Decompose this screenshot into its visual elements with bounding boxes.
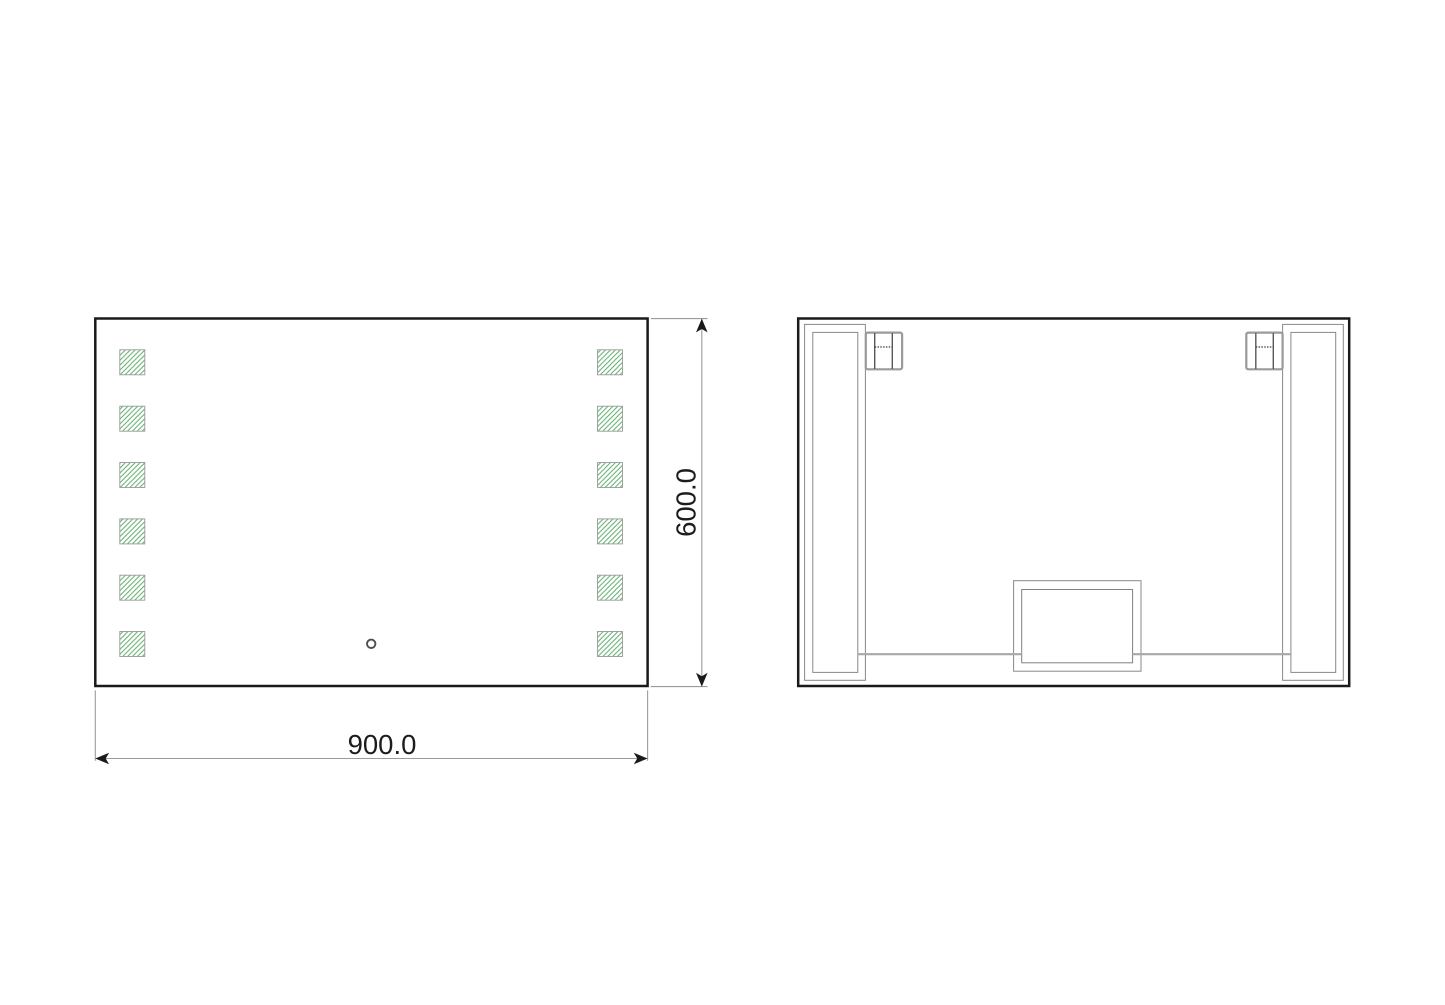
svg-text:600.0: 600.0 — [671, 468, 702, 537]
svg-text:900.0: 900.0 — [348, 729, 417, 760]
